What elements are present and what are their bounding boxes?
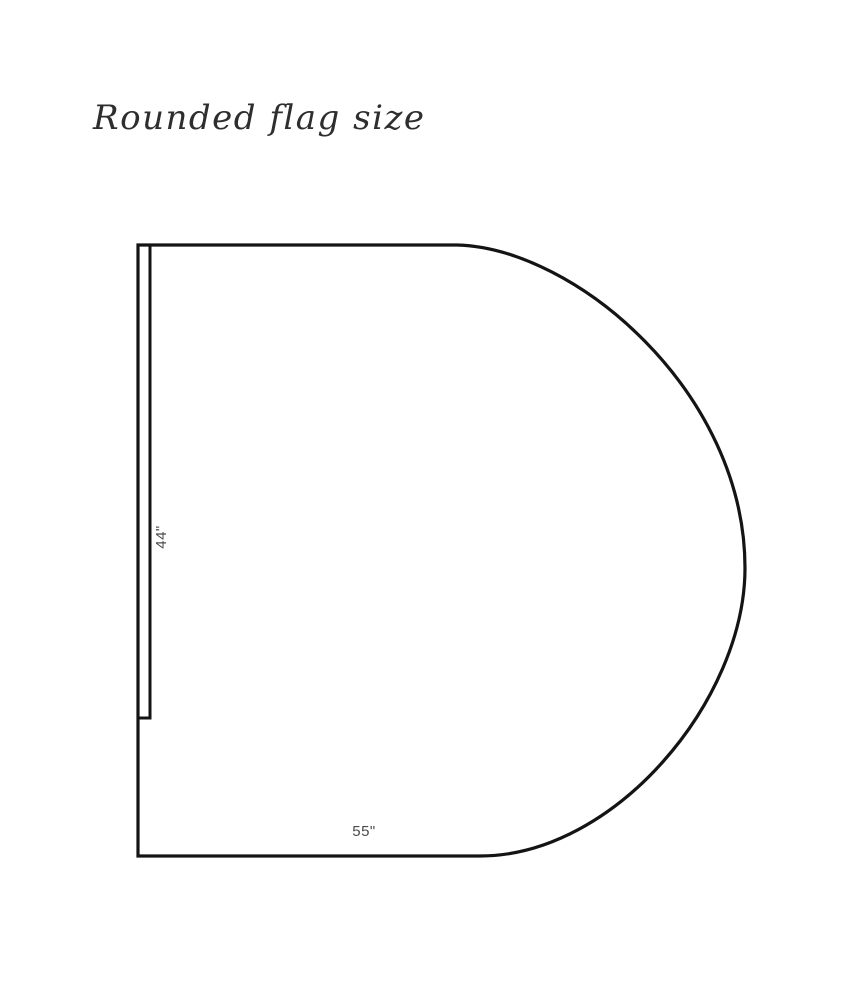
sleeve-line [138, 245, 150, 718]
flag-diagram: 44" 55" [0, 0, 859, 1000]
width-dimension-label: 55" [352, 823, 376, 840]
height-dimension-label: 44" [153, 525, 170, 549]
page-canvas: Rounded flag size 44" 55" [0, 0, 859, 1000]
flag-outline [138, 245, 745, 856]
